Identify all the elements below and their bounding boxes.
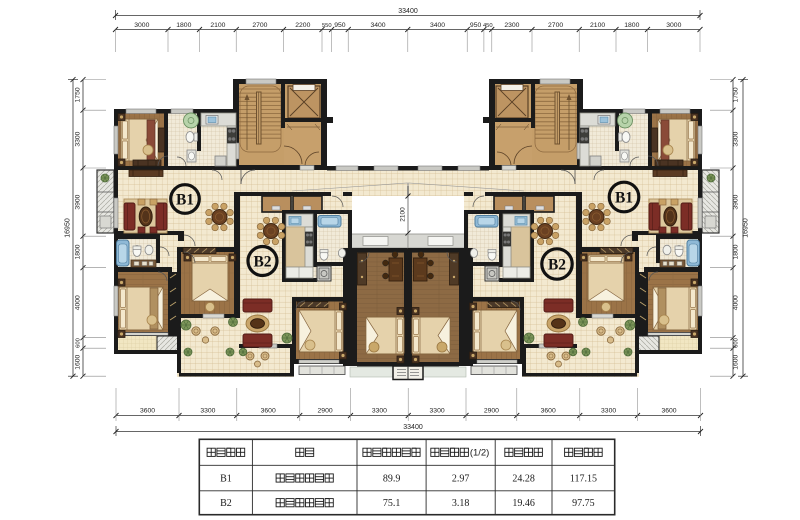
- svg-text:950: 950: [470, 22, 482, 29]
- svg-text:600: 600: [76, 338, 82, 348]
- svg-text:1800: 1800: [176, 22, 191, 29]
- svg-text:1750: 1750: [732, 87, 739, 102]
- svg-text:3300: 3300: [601, 408, 616, 415]
- svg-text:1750: 1750: [74, 87, 81, 102]
- svg-text:3000: 3000: [134, 22, 149, 29]
- svg-text:4000: 4000: [732, 295, 739, 310]
- svg-text:3.18: 3.18: [452, 498, 470, 509]
- svg-text:3300: 3300: [200, 408, 215, 415]
- svg-text:4000: 4000: [74, 295, 81, 310]
- svg-text:2300: 2300: [504, 22, 519, 29]
- svg-text:3900: 3900: [75, 194, 82, 209]
- svg-text:600: 600: [734, 338, 740, 348]
- svg-text:3900: 3900: [733, 194, 740, 209]
- svg-text:(1/2): (1/2): [470, 447, 490, 458]
- svg-text:3300: 3300: [733, 131, 740, 146]
- svg-text:2900: 2900: [318, 408, 333, 415]
- svg-text:3600: 3600: [661, 408, 676, 415]
- svg-text:33400: 33400: [398, 8, 418, 15]
- svg-text:B1: B1: [176, 192, 194, 209]
- svg-text:B1: B1: [220, 474, 232, 485]
- svg-text:3300: 3300: [75, 131, 82, 146]
- svg-text:3600: 3600: [541, 408, 556, 415]
- svg-text:97.75: 97.75: [572, 498, 595, 509]
- svg-text:2200: 2200: [295, 22, 310, 29]
- svg-text:3400: 3400: [370, 22, 385, 29]
- svg-text:1800: 1800: [75, 244, 82, 259]
- svg-text:2900: 2900: [484, 408, 499, 415]
- svg-text:1600: 1600: [74, 354, 81, 369]
- svg-text:3600: 3600: [261, 408, 276, 415]
- svg-text:33400: 33400: [403, 424, 423, 431]
- svg-text:3600: 3600: [140, 408, 155, 415]
- svg-text:3300: 3300: [430, 408, 445, 415]
- svg-text:16950: 16950: [743, 218, 750, 238]
- svg-text:2700: 2700: [252, 22, 267, 29]
- svg-text:B2: B2: [548, 257, 566, 274]
- svg-text:89.9: 89.9: [383, 474, 401, 485]
- svg-text:3000: 3000: [666, 22, 681, 29]
- svg-text:950: 950: [334, 22, 346, 29]
- svg-text:19.46: 19.46: [512, 498, 535, 509]
- svg-text:550: 550: [322, 23, 332, 29]
- svg-text:1600: 1600: [732, 354, 739, 369]
- svg-text:2100: 2100: [590, 22, 605, 29]
- svg-text:24.28: 24.28: [512, 474, 535, 485]
- svg-text:16950: 16950: [65, 218, 72, 238]
- svg-text:2700: 2700: [548, 22, 563, 29]
- svg-text:B2: B2: [253, 254, 271, 271]
- svg-text:3400: 3400: [430, 22, 445, 29]
- svg-text:450: 450: [483, 23, 493, 29]
- svg-text:117.15: 117.15: [570, 474, 597, 485]
- svg-text:B2: B2: [220, 498, 232, 509]
- svg-text:B1: B1: [615, 190, 633, 207]
- svg-text:75.1: 75.1: [383, 498, 401, 509]
- svg-text:3300: 3300: [372, 408, 387, 415]
- svg-text:1800: 1800: [733, 244, 740, 259]
- svg-text:2100: 2100: [210, 22, 225, 29]
- svg-text:1800: 1800: [624, 22, 639, 29]
- svg-text:2.97: 2.97: [452, 474, 470, 485]
- svg-text:2100: 2100: [400, 207, 407, 222]
